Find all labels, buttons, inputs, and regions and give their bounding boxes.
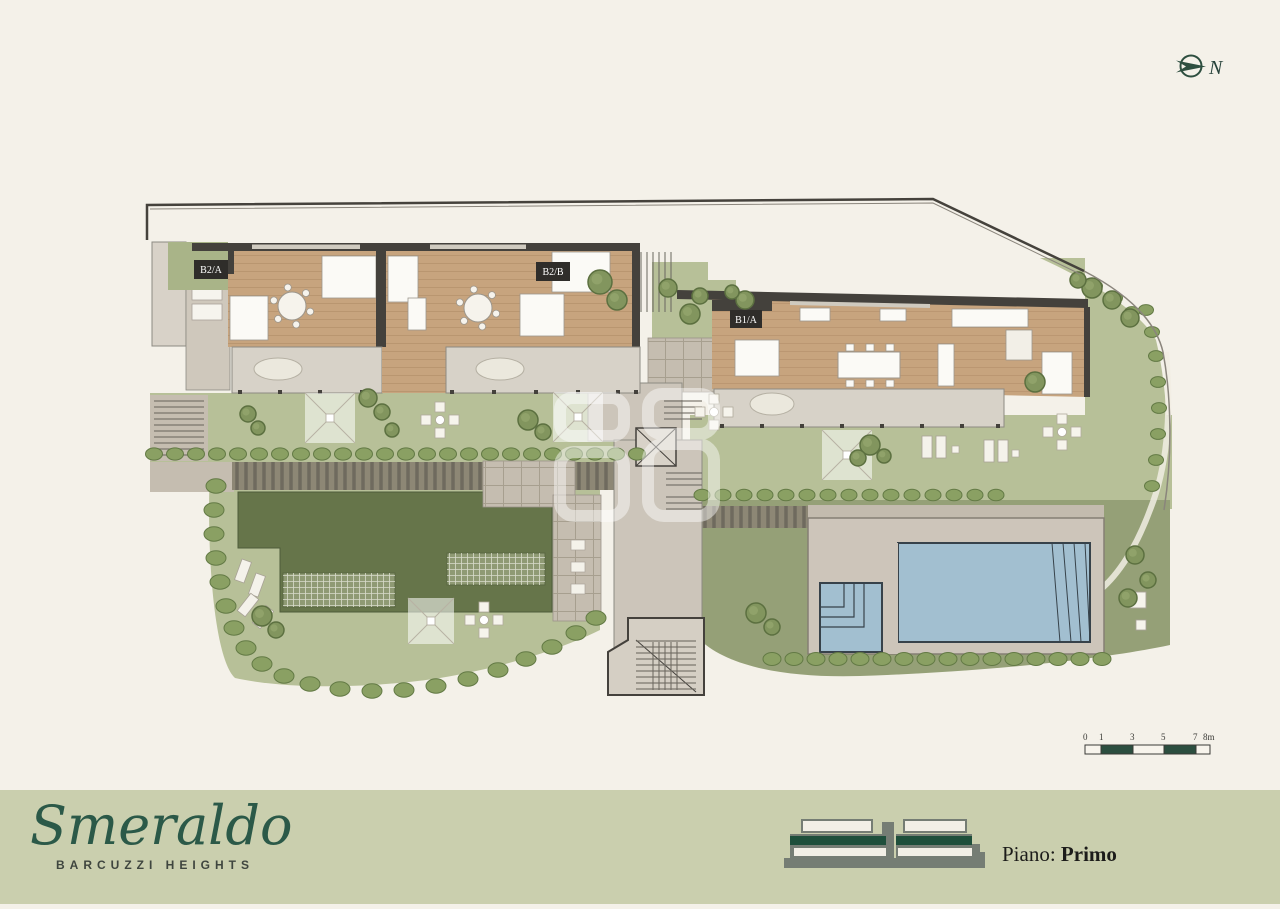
unit-label: B2/B [542, 267, 563, 278]
site-plan-area: B2/A B2/B B1/A [0, 0, 1280, 904]
floor-value: Primo [1061, 842, 1117, 866]
site-plan: B2/A B2/B B1/A [0, 0, 1280, 904]
scale-tick: 8m [1203, 732, 1215, 742]
main-pool [898, 543, 1090, 642]
scale-tick: 5 [1161, 732, 1166, 742]
scale-tick: 3 [1130, 732, 1135, 742]
brand-logo: Smeraldo BARCUZZI HEIGHTS [30, 796, 280, 872]
scale-tick: 1 [1099, 732, 1104, 742]
footer-band: Smeraldo BARCUZZI HEIGHTS Piano: Primo [0, 790, 1280, 904]
floor-label: Piano: [1002, 842, 1056, 866]
north-arrow-icon: N [1176, 56, 1224, 80]
page: { "north": { "label": "N" }, "plan": { "… [0, 0, 1280, 904]
unit-label: B1/A [735, 315, 757, 326]
scale-bar: 0 1 3 5 7 8m [1083, 732, 1215, 754]
floor-indicator: Piano: Primo [1002, 842, 1117, 867]
right-building: B1/A [677, 290, 1090, 428]
building-section-icon [780, 812, 990, 872]
brand-name: Smeraldo [30, 796, 280, 856]
unit-label: B2/A [200, 265, 222, 276]
left-building: B2/A B2/B [152, 242, 640, 394]
brand-subtitle: BARCUZZI HEIGHTS [30, 858, 280, 872]
scale-tick: 0 [1083, 732, 1088, 742]
highlighted-floor [790, 836, 886, 845]
north-label: N [1208, 57, 1224, 79]
scale-tick: 7 [1193, 732, 1198, 742]
